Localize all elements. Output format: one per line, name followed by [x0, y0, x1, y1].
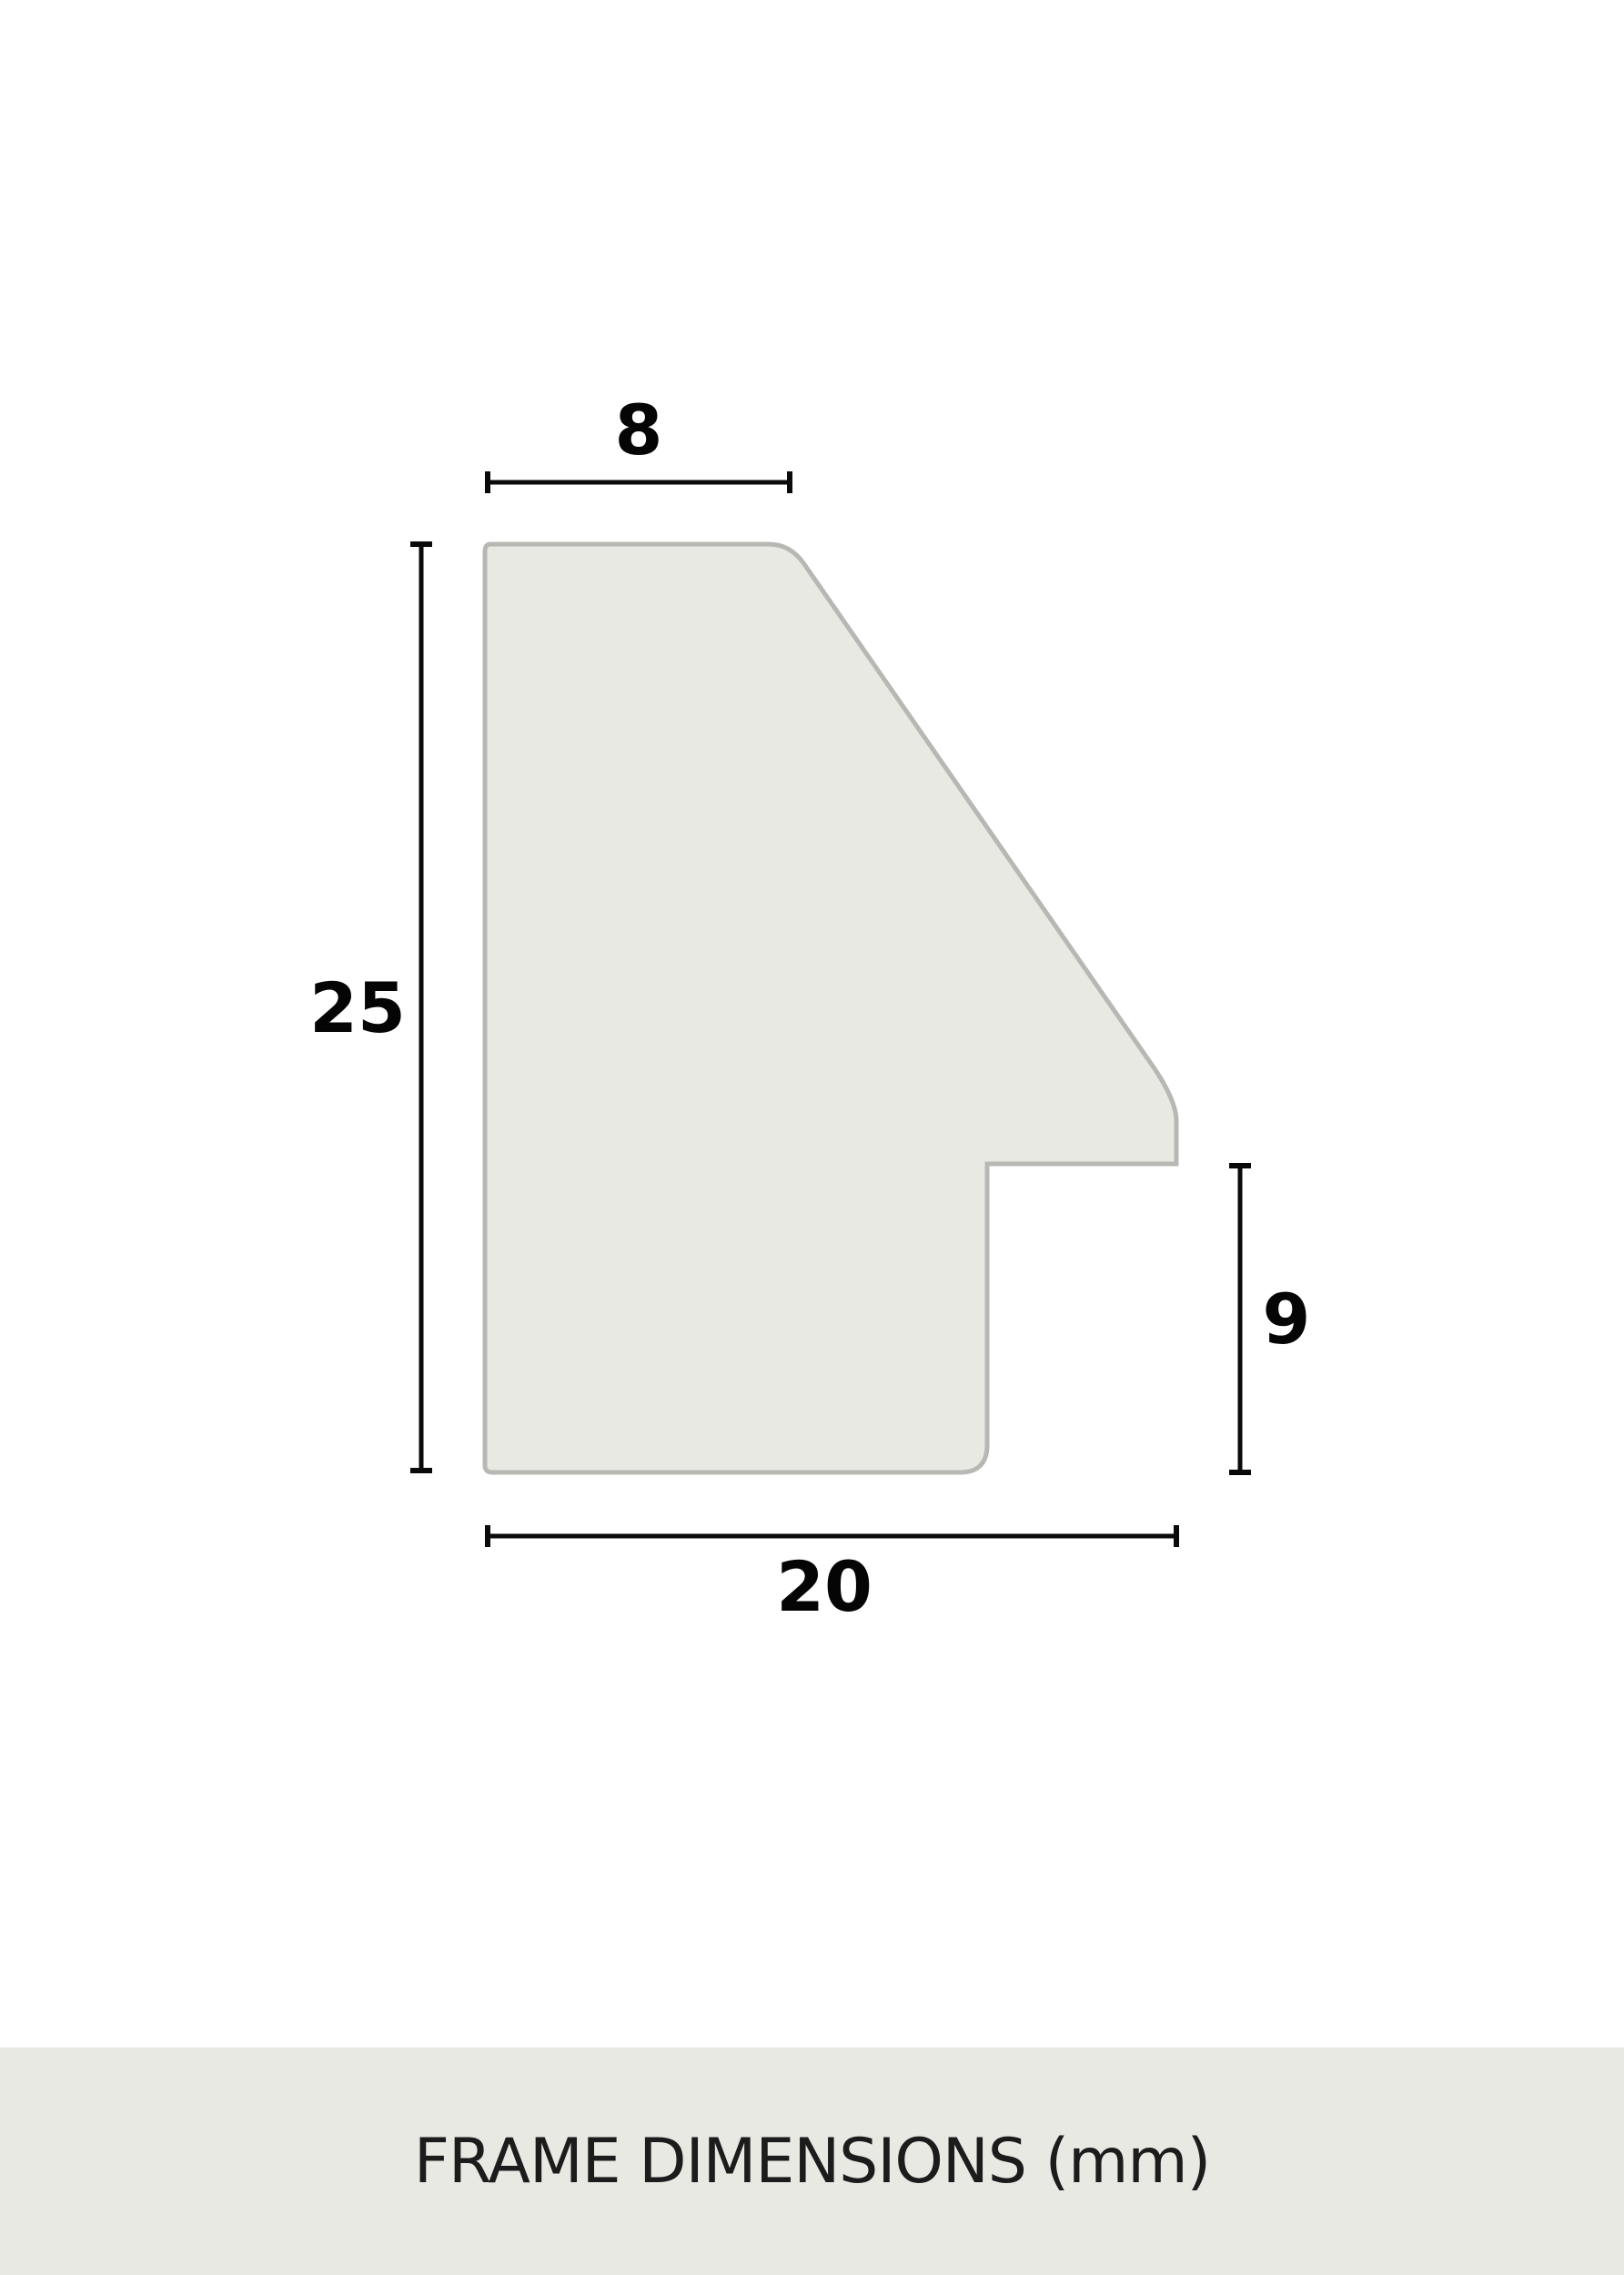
footer-bar: FRAME DIMENSIONS (mm)	[0, 2047, 1624, 2275]
dimension-line-right-height	[1229, 1166, 1251, 1472]
frame-dimensions-diagram: 8 25 9 20 FRAME DIMENSIONS (mm)	[0, 0, 1624, 2275]
dimension-label-bottom-width: 20	[776, 1552, 873, 1622]
dimension-label-top-width: 8	[615, 396, 663, 465]
diagram-canvas	[0, 0, 1624, 2275]
frame-profile-shape	[485, 544, 1176, 1472]
dimension-line-top-width	[488, 471, 790, 493]
dimension-line-left-height	[410, 544, 432, 1471]
dimension-line-bottom-width	[488, 1525, 1176, 1547]
footer-title: FRAME DIMENSIONS (mm)	[414, 2126, 1210, 2198]
dimension-label-right-height: 9	[1263, 1285, 1311, 1354]
dimension-label-left-height: 25	[309, 974, 406, 1043]
